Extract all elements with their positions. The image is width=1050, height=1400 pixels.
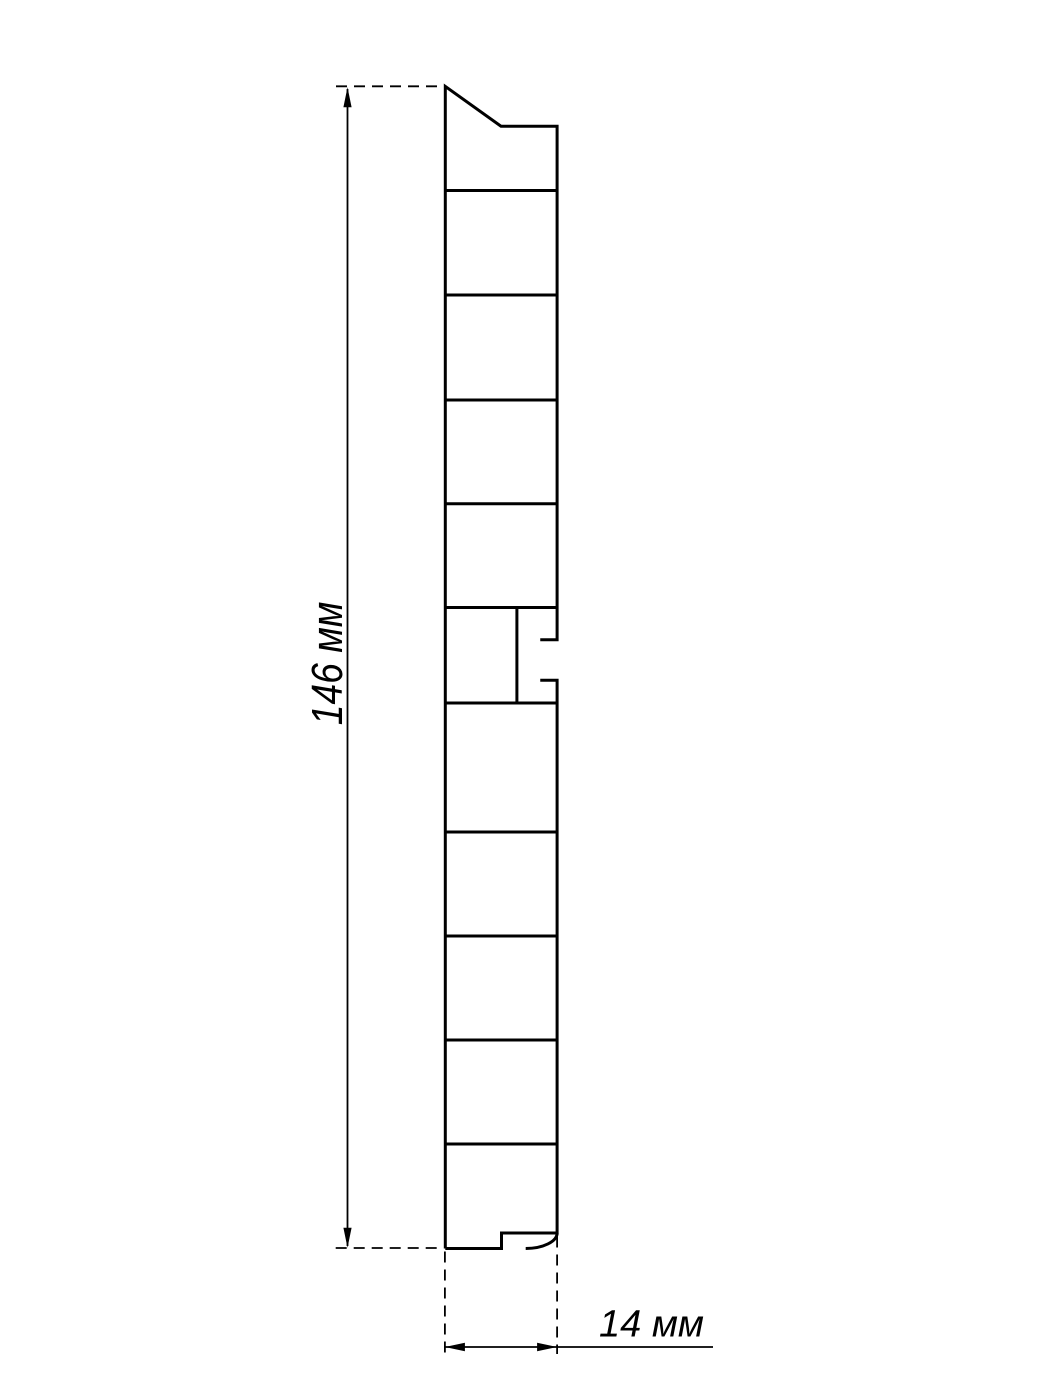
svg-text:146 мм: 146 мм (302, 602, 352, 726)
svg-text:14 мм: 14 мм (599, 1304, 704, 1346)
